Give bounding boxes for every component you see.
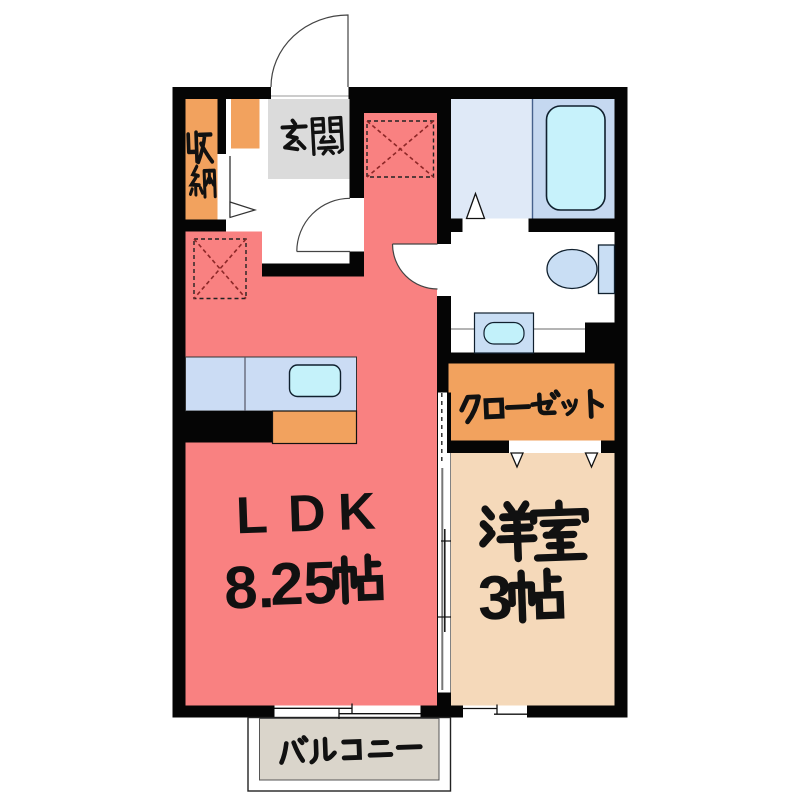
svg-text:8.: 8. [223,553,275,622]
svg-text:25: 25 [269,549,338,618]
svg-text:K: K [337,483,377,542]
svg-text:D: D [287,484,327,543]
svg-text:L: L [235,486,269,545]
svg-text:3: 3 [477,563,514,633]
